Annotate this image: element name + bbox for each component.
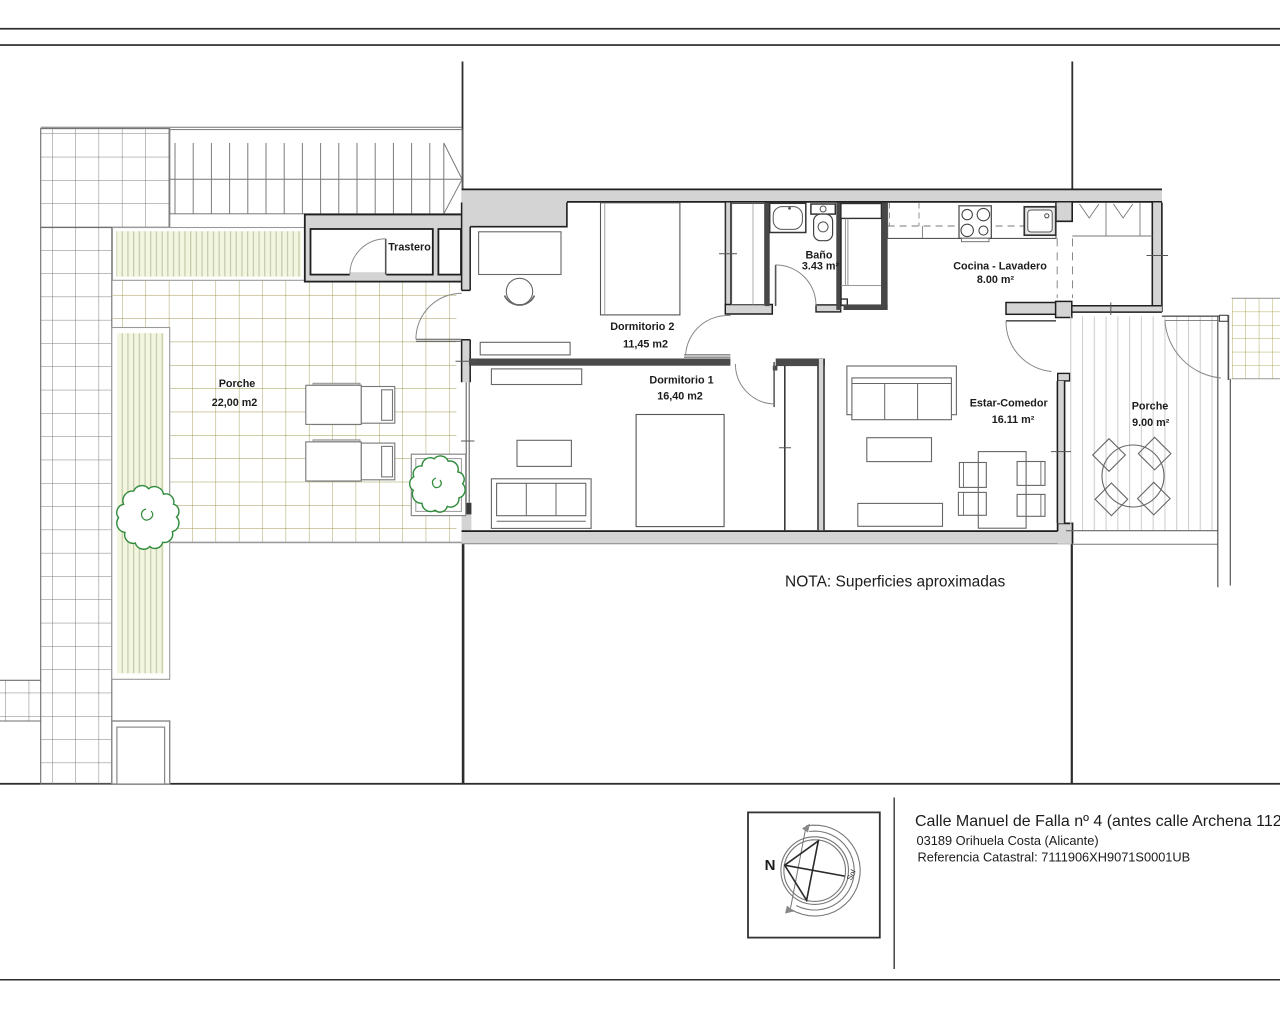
svg-text:9.00 m²: 9.00 m² [1132,417,1170,429]
svg-text:16,40 m2: 16,40 m2 [657,391,703,403]
svg-text:Porche: Porche [219,378,256,390]
svg-text:Dormitorio 1: Dormitorio 1 [649,375,713,387]
svg-text:Calle Manuel de Falla nº 4 (an: Calle Manuel de Falla nº 4 (antes calle … [915,813,1280,830]
svg-text:Referencia Catastral: 7111906X: Referencia Catastral: 7111906XH9071S0001… [918,850,1191,865]
svg-text:Porche: Porche [1132,401,1169,413]
svg-text:NOTA: Superficies aproximadas: NOTA: Superficies aproximadas [785,574,1005,591]
svg-text:16.11 m²: 16.11 m² [992,414,1035,426]
svg-text:Cocina - Lavadero: Cocina - Lavadero [953,261,1047,273]
svg-text:22,00 m2: 22,00 m2 [212,397,258,409]
svg-text:Trastero: Trastero [388,242,431,254]
svg-text:8.00 m²: 8.00 m² [977,274,1015,286]
svg-text:11,45 m2: 11,45 m2 [623,339,668,351]
svg-text:03189 Orihuela Costa (Alicante: 03189 Orihuela Costa (Alicante) [917,833,1099,848]
svg-text:3.43 m²: 3.43 m² [802,261,840,273]
svg-text:Dormitorio 2: Dormitorio 2 [610,321,674,333]
svg-text:Estar-Comedor: Estar-Comedor [970,398,1049,410]
svg-text:N: N [765,857,776,874]
